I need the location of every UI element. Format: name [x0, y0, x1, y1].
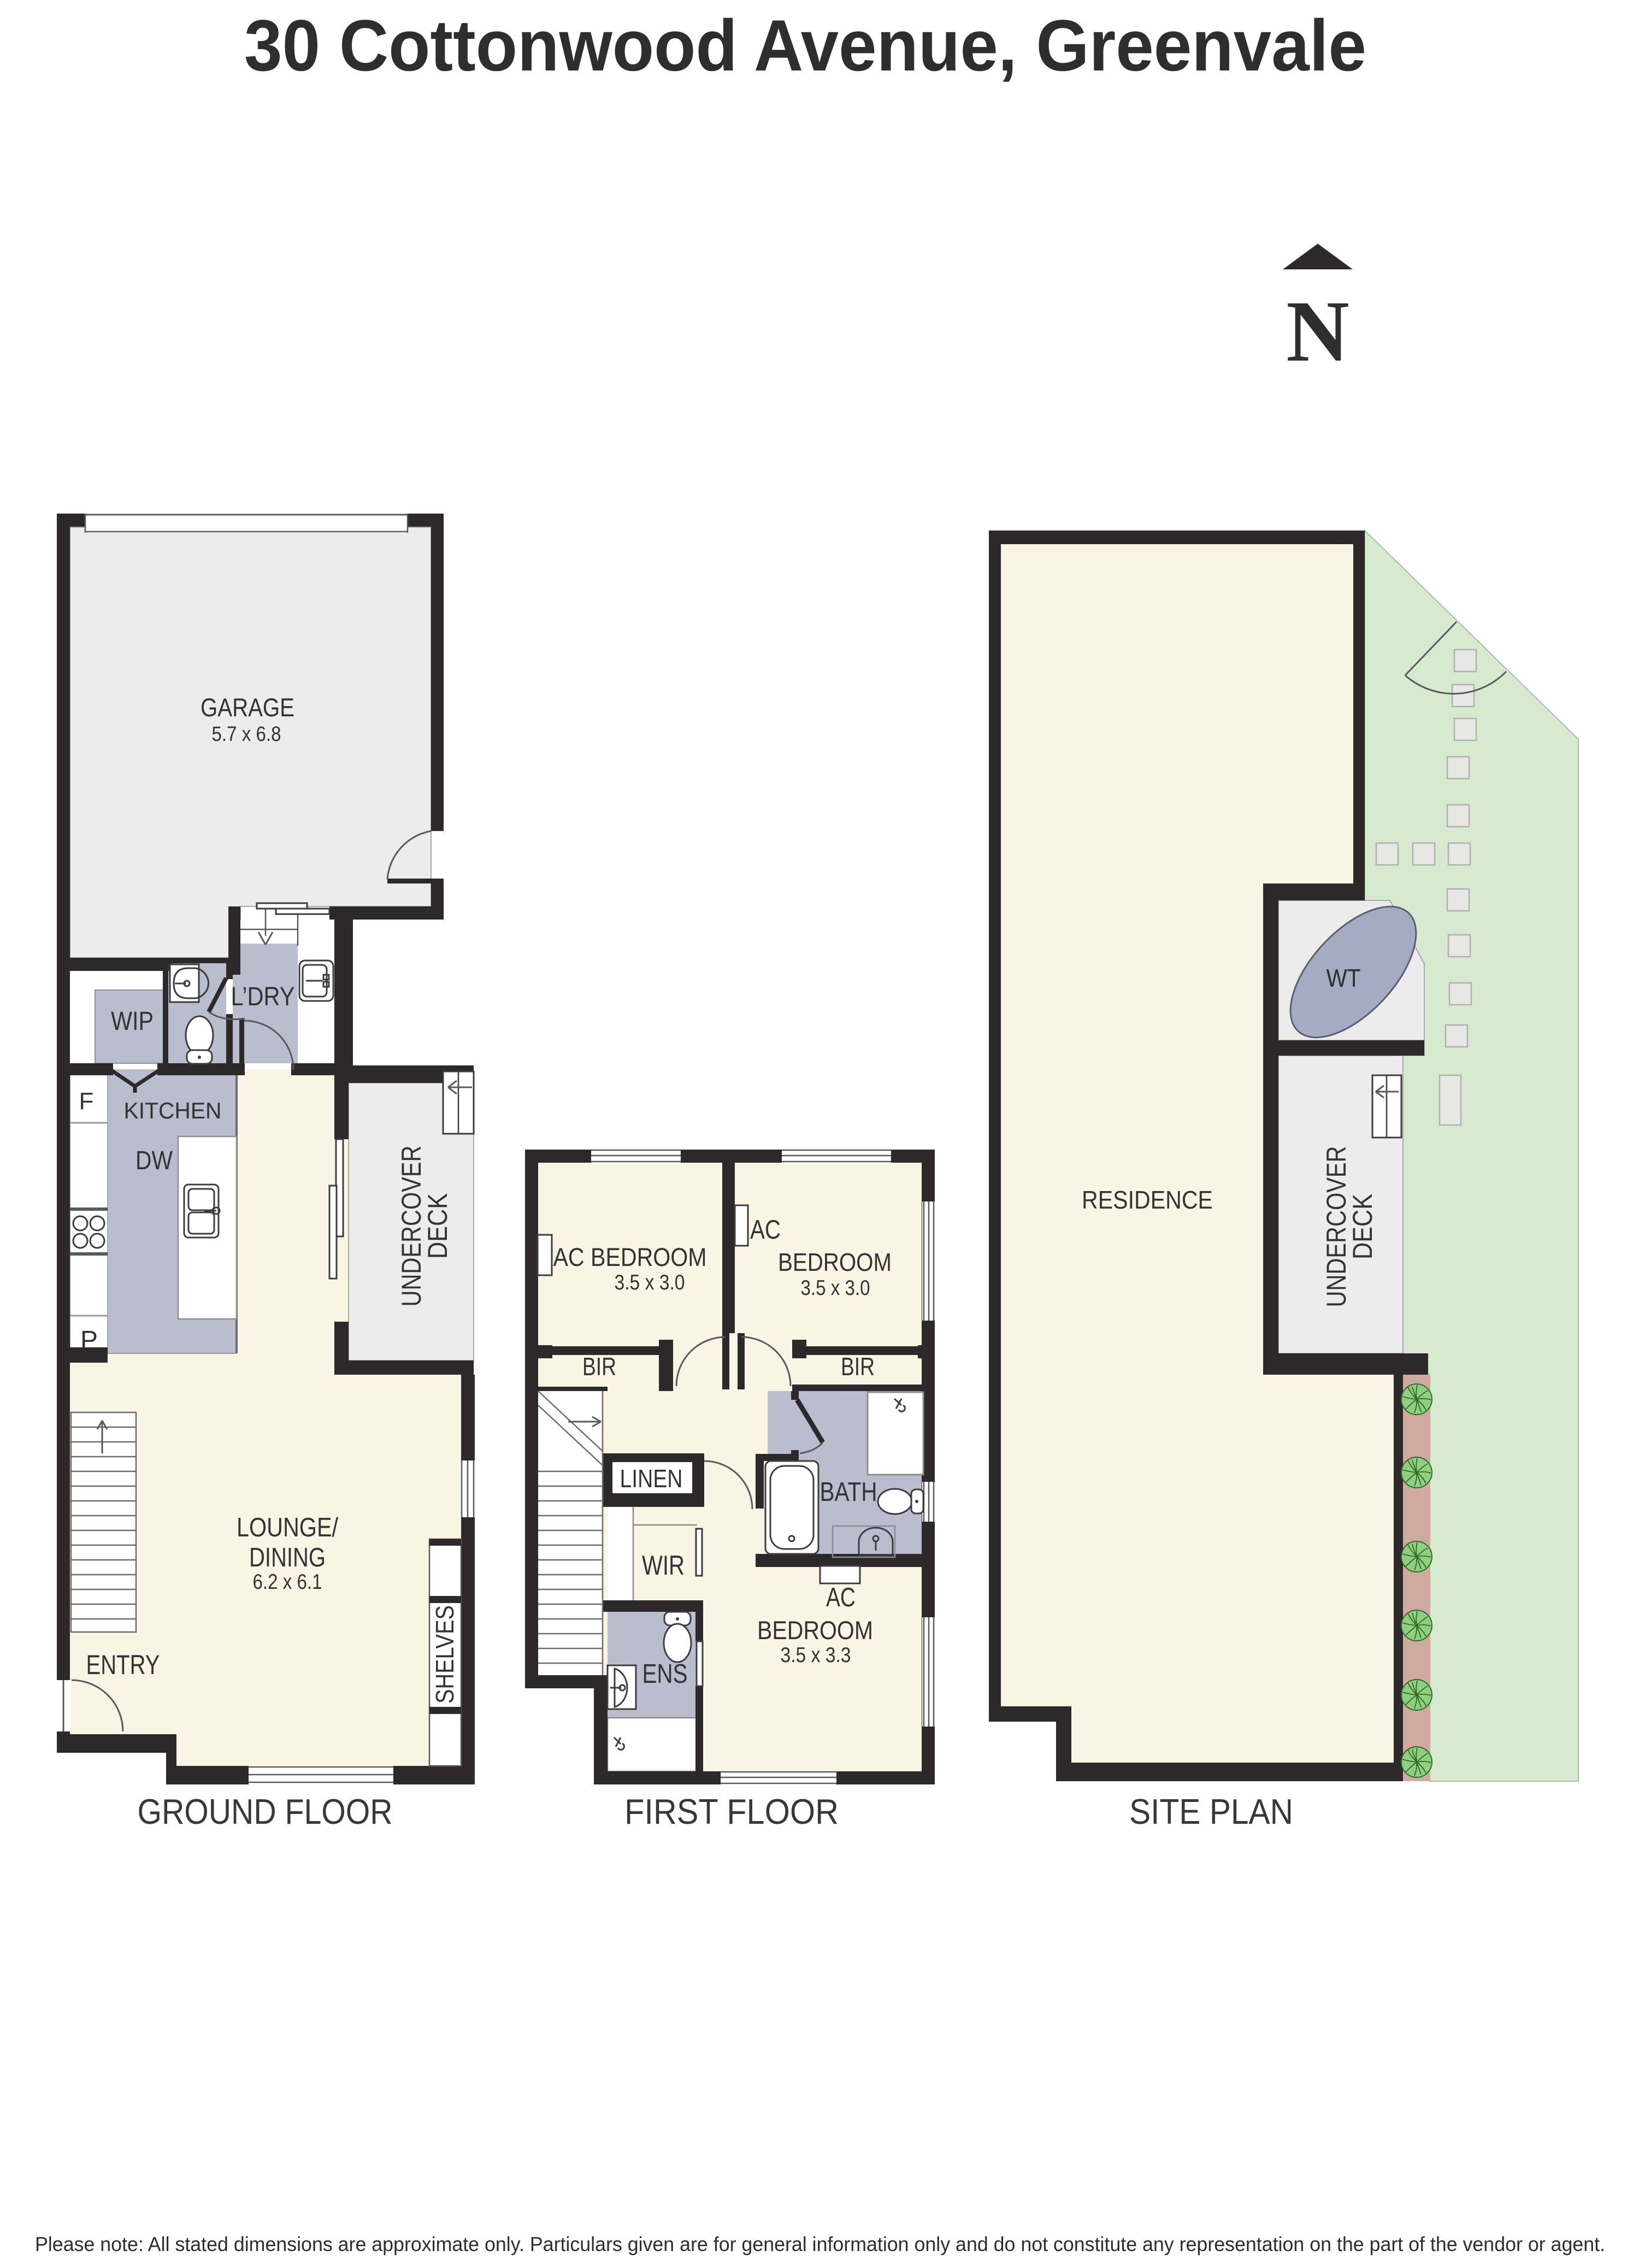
- svg-text:3.5 x 3.0: 3.5 x 3.0: [801, 1276, 870, 1300]
- svg-text:FIRST FLOOR: FIRST FLOOR: [624, 1792, 839, 1831]
- svg-text:LINEN: LINEN: [620, 1464, 683, 1493]
- svg-text:30 Cottonwood Avenue, Greenval: 30 Cottonwood Avenue, Greenvale: [244, 5, 1366, 86]
- svg-text:BEDROOM: BEDROOM: [757, 1616, 873, 1645]
- svg-text:DINING: DINING: [249, 1543, 326, 1572]
- svg-text:WIR: WIR: [642, 1550, 685, 1581]
- svg-text:GROUND FLOOR: GROUND FLOOR: [138, 1792, 393, 1831]
- svg-text:KITCHEN: KITCHEN: [124, 1098, 222, 1123]
- svg-text:P: P: [80, 1326, 98, 1355]
- svg-text:DECK: DECK: [1347, 1194, 1378, 1259]
- svg-text:WIP: WIP: [111, 1007, 154, 1036]
- svg-text:GARAGE: GARAGE: [201, 693, 294, 722]
- svg-text:AC: AC: [826, 1583, 856, 1612]
- svg-text:BIR: BIR: [582, 1352, 616, 1381]
- svg-text:5.7 x 6.8: 5.7 x 6.8: [212, 723, 281, 746]
- svg-text:6.2 x 6.1: 6.2 x 6.1: [253, 1570, 322, 1594]
- svg-text:WT: WT: [1326, 964, 1361, 992]
- svg-text:BIR: BIR: [841, 1352, 875, 1381]
- svg-text:F: F: [79, 1088, 94, 1115]
- svg-text:Please note: All stated dimens: Please note: All stated dimensions are a…: [35, 2233, 1605, 2255]
- svg-text:ENTRY: ENTRY: [86, 1650, 160, 1680]
- svg-text:BATH: BATH: [820, 1477, 877, 1507]
- svg-text:3.5 x 3.3: 3.5 x 3.3: [781, 1643, 851, 1667]
- svg-text:ENS: ENS: [642, 1659, 688, 1689]
- svg-text:DECK: DECK: [422, 1193, 453, 1259]
- svg-text:AC: AC: [750, 1215, 781, 1245]
- svg-text:N: N: [1286, 282, 1349, 380]
- svg-text:L’DRY: L’DRY: [231, 982, 295, 1011]
- svg-text:RESIDENCE: RESIDENCE: [1082, 1186, 1213, 1214]
- svg-text:SITE PLAN: SITE PLAN: [1129, 1792, 1293, 1831]
- svg-text:DW: DW: [135, 1146, 173, 1175]
- svg-text:SHELVES: SHELVES: [431, 1605, 459, 1704]
- svg-text:3.5 x 3.0: 3.5 x 3.0: [615, 1271, 685, 1294]
- svg-text:BEDROOM: BEDROOM: [778, 1248, 892, 1276]
- svg-text:AC BEDROOM: AC BEDROOM: [553, 1242, 707, 1271]
- svg-text:LOUNGE/: LOUNGE/: [237, 1513, 338, 1542]
